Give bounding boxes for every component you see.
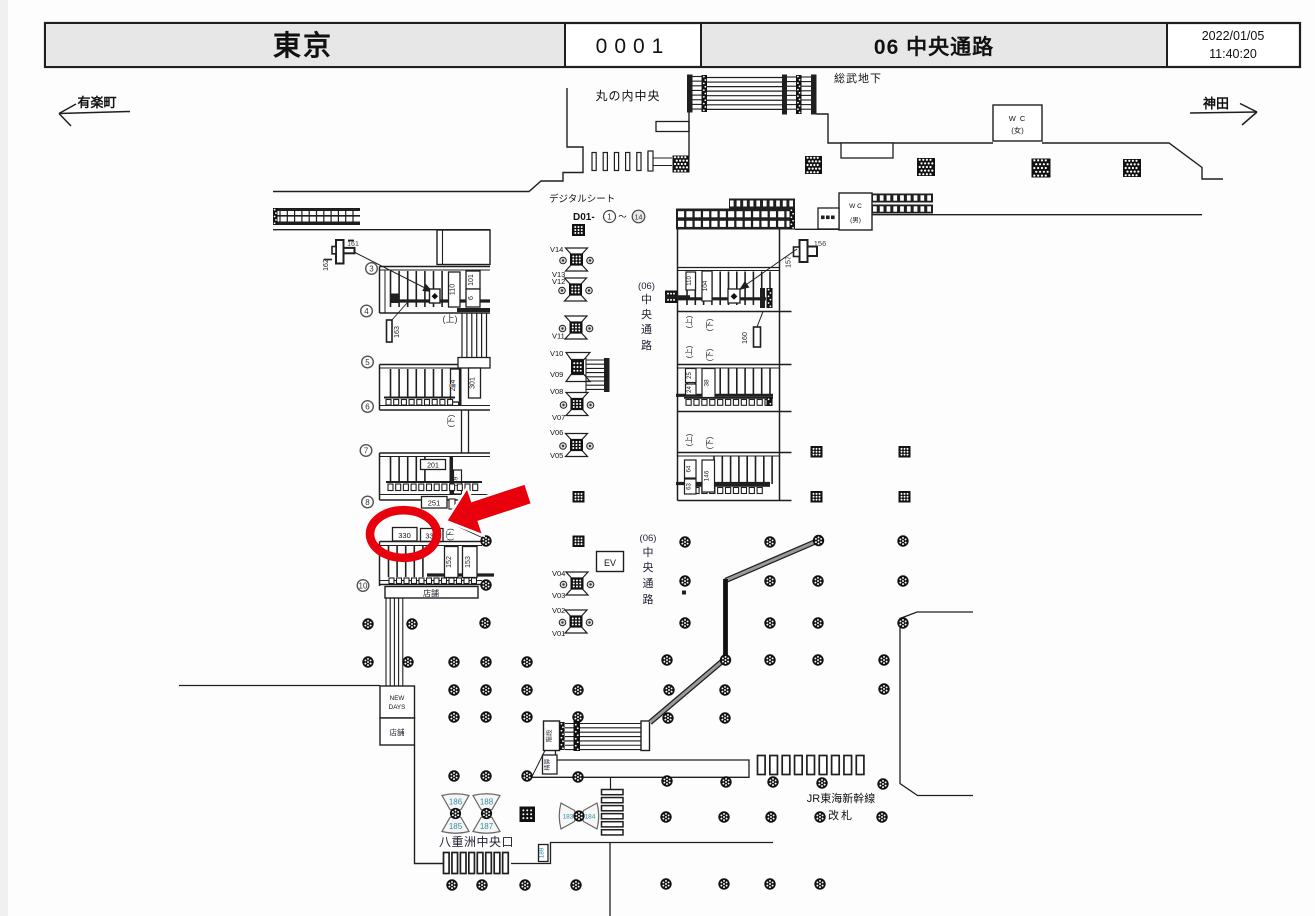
- svg-text:162: 162: [323, 259, 330, 271]
- svg-text:W C: W C: [849, 203, 862, 210]
- svg-text:(上): (上): [443, 314, 458, 324]
- svg-text:店舗: 店舗: [390, 727, 405, 737]
- svg-text:185: 185: [449, 822, 463, 831]
- svg-text:V01: V01: [552, 629, 565, 638]
- svg-text:V02: V02: [552, 606, 565, 615]
- svg-text:(下): (下): [705, 348, 714, 361]
- svg-text:中: 中: [641, 293, 652, 306]
- svg-text:東京: 東京: [273, 29, 333, 61]
- svg-text:(下): (下): [446, 528, 455, 541]
- svg-text:25: 25: [687, 372, 693, 379]
- svg-text:V03: V03: [552, 591, 565, 600]
- svg-text:V05: V05: [550, 451, 563, 460]
- svg-text:152: 152: [446, 556, 453, 568]
- svg-text:(上): (上): [685, 433, 694, 446]
- svg-text:06 中央通路: 06 中央通路: [874, 35, 994, 59]
- svg-text:4: 4: [364, 307, 369, 316]
- svg-text:10: 10: [359, 581, 368, 590]
- svg-text:(下): (下): [705, 436, 714, 449]
- svg-text:V09: V09: [550, 370, 563, 379]
- svg-text:央: 央: [643, 561, 654, 574]
- svg-text:通: 通: [641, 323, 652, 336]
- svg-text:201: 201: [427, 462, 439, 469]
- svg-text:183: 183: [563, 814, 574, 821]
- svg-text:精算: 精算: [544, 758, 552, 770]
- svg-text:187: 187: [480, 822, 494, 831]
- svg-text:5: 5: [365, 358, 370, 367]
- svg-text:2022/01/05: 2022/01/05: [1202, 29, 1265, 43]
- svg-text:110: 110: [687, 276, 693, 286]
- svg-text:有楽町: 有楽町: [77, 95, 116, 110]
- svg-text:総武地下: 総武地下: [834, 71, 882, 85]
- svg-text:156: 156: [814, 239, 827, 248]
- svg-text:(上): (上): [685, 345, 694, 358]
- svg-text:6: 6: [365, 402, 370, 411]
- svg-text:110: 110: [450, 284, 457, 295]
- svg-text:38: 38: [704, 379, 711, 387]
- svg-text:330: 330: [398, 531, 411, 540]
- svg-text:EV: EV: [604, 558, 616, 568]
- svg-text:(06): (06): [638, 281, 655, 292]
- svg-text:JR東海新幹線: JR東海新幹線: [807, 791, 875, 805]
- svg-text:157: 157: [786, 256, 793, 268]
- svg-text:153: 153: [465, 556, 472, 568]
- svg-text:V11: V11: [552, 332, 565, 341]
- svg-text:11:40:20: 11:40:20: [1209, 47, 1257, 61]
- svg-text:路: 路: [643, 593, 654, 606]
- svg-text:V06: V06: [550, 428, 563, 437]
- svg-text:3: 3: [369, 264, 374, 273]
- svg-text:中: 中: [643, 546, 654, 559]
- svg-text:(上): (上): [685, 315, 694, 328]
- svg-text:101: 101: [468, 274, 475, 286]
- svg-text:189: 189: [539, 847, 546, 858]
- svg-text:(下): (下): [705, 318, 714, 331]
- svg-text:(06): (06): [640, 533, 657, 544]
- svg-text:7: 7: [364, 446, 369, 455]
- svg-text:神田: 神田: [1203, 96, 1229, 111]
- svg-text:1: 1: [607, 213, 612, 222]
- svg-text:デジタルシート: デジタルシート: [549, 193, 615, 205]
- svg-text:DAYS: DAYS: [389, 704, 406, 711]
- svg-text:NEW: NEW: [390, 695, 405, 702]
- svg-text:V08: V08: [550, 387, 563, 396]
- svg-text:14: 14: [635, 214, 643, 221]
- svg-text:6: 6: [468, 296, 475, 300]
- svg-text:(男): (男): [850, 216, 861, 224]
- svg-text:251: 251: [428, 499, 441, 508]
- svg-text:161: 161: [347, 241, 359, 248]
- svg-text:(女): (女): [1011, 125, 1024, 135]
- svg-text:301: 301: [470, 377, 477, 389]
- svg-text:163: 163: [394, 326, 401, 338]
- svg-text:(下): (下): [447, 414, 456, 427]
- svg-text:104: 104: [702, 280, 709, 291]
- svg-text:63: 63: [687, 483, 693, 490]
- svg-text:通: 通: [643, 577, 654, 590]
- svg-text:V14: V14: [550, 245, 563, 254]
- svg-text:改札: 改札: [828, 808, 854, 822]
- svg-text:186: 186: [449, 798, 463, 807]
- svg-text:8: 8: [365, 498, 370, 507]
- svg-text:央: 央: [641, 308, 652, 321]
- svg-text:路: 路: [641, 339, 652, 352]
- svg-text:D01-: D01-: [573, 212, 595, 223]
- svg-text:146: 146: [704, 470, 711, 481]
- svg-text:八重洲中央口: 八重洲中央口: [439, 834, 514, 849]
- svg-text:店舗: 店舗: [423, 588, 439, 598]
- svg-text:188: 188: [480, 798, 494, 807]
- svg-text:丸の内中央: 丸の内中央: [595, 88, 660, 103]
- svg-text:V07: V07: [552, 413, 565, 422]
- svg-text:W C: W C: [1009, 114, 1027, 123]
- svg-text:184: 184: [585, 814, 596, 821]
- svg-text:24: 24: [687, 386, 693, 393]
- svg-text:V12: V12: [552, 277, 565, 286]
- svg-text:V04: V04: [552, 569, 565, 578]
- svg-text:V10: V10: [550, 349, 563, 358]
- svg-text:～: ～: [618, 212, 627, 222]
- svg-text:64: 64: [687, 465, 693, 472]
- svg-text:階段: 階段: [544, 729, 553, 743]
- svg-text:160: 160: [742, 332, 749, 344]
- svg-text:0001: 0001: [596, 35, 671, 58]
